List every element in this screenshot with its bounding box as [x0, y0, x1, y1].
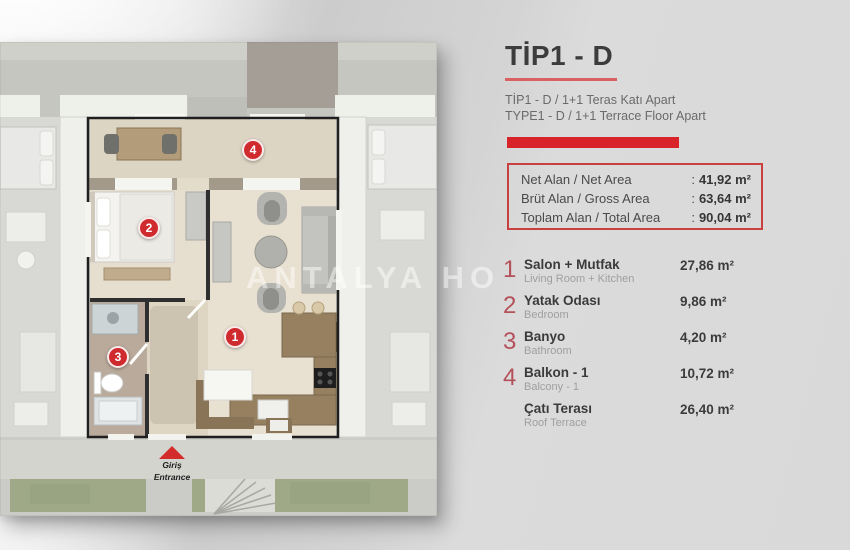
room-row-roof-terrace: Çatı Terası Roof Terrace 26,40 m² — [503, 401, 833, 429]
area-value: 63,64 m² — [699, 191, 751, 206]
room-number: 4 — [503, 366, 524, 393]
neighbor-unit-left — [0, 117, 88, 437]
room-area: 4,20 m² — [680, 330, 833, 357]
room-badge-4: 4 — [242, 139, 264, 161]
room-name-en: Roof Terrace — [524, 417, 680, 429]
room-row-bathroom: 3 Banyo Bathroom 4,20 m² — [503, 329, 833, 357]
street-band — [0, 42, 437, 117]
room-number: 1 — [503, 258, 524, 285]
area-label: Toplam Alan / Total Area — [521, 208, 691, 227]
room-area: 27,86 m² — [680, 258, 833, 285]
sofa — [302, 207, 336, 293]
bed-bench — [104, 268, 170, 280]
area-value: 41,92 m² — [699, 172, 751, 187]
area-summary-box: Net Alan / Net Area :41,92 m² Brüt Alan … — [507, 163, 763, 230]
room-area: 26,40 m² — [680, 402, 833, 429]
area-row-gross: Brüt Alan / Gross Area :63,64 m² — [521, 189, 751, 208]
colon: : — [691, 172, 695, 187]
room-number: 2 — [503, 294, 524, 321]
colon: : — [691, 191, 695, 206]
room-area: 9,86 m² — [680, 294, 833, 321]
entrance-label-tr: Giriş — [142, 461, 202, 471]
entrance-marker: Giriş Entrance — [142, 446, 202, 482]
armchair-bottom — [257, 283, 286, 313]
room-area: 10,72 m² — [680, 366, 833, 393]
red-accent-bar — [507, 137, 679, 148]
area-label: Brüt Alan / Gross Area — [521, 189, 691, 208]
garden — [0, 440, 437, 514]
area-row-total: Toplam Alan / Total Area :90,04 m² — [521, 208, 751, 227]
room-name-tr: Banyo — [524, 329, 680, 344]
room-name-tr: Salon + Mutfak — [524, 257, 680, 272]
console-cabinet — [213, 222, 231, 282]
room-badge-1: 1 — [224, 326, 246, 348]
room-name-en: Living Room + Kitchen — [524, 273, 680, 285]
room-number — [503, 402, 524, 429]
room-name-tr: Çatı Terası — [524, 401, 680, 416]
stove — [314, 368, 336, 388]
room-name-en: Bathroom — [524, 345, 680, 357]
bed — [90, 192, 174, 262]
unit-subtitles: TİP1 - D / 1+1 Teras Katı Apart TYPE1 - … — [505, 92, 706, 124]
armchair-top — [257, 192, 287, 225]
subtitle-english: TYPE1 - D / 1+1 Terrace Floor Apart — [505, 108, 706, 124]
bathtub — [94, 397, 142, 425]
floor-plan-rendering — [0, 42, 437, 516]
entrance-arrow-icon — [159, 446, 185, 459]
neighbor-unit-right — [338, 117, 437, 437]
room-name-tr: Yatak Odası — [524, 293, 680, 308]
subtitle-turkish: TİP1 - D / 1+1 Teras Katı Apart — [505, 92, 706, 108]
entrance-label-en: Entrance — [142, 473, 202, 483]
wardrobe — [186, 192, 206, 240]
room-name-en: Bedroom — [524, 309, 680, 321]
room-row-bedroom: 2 Yatak Odası Bedroom 9,86 m² — [503, 293, 833, 321]
room-number: 3 — [503, 330, 524, 357]
room-row-living: 1 Salon + Mutfak Living Room + Kitchen 2… — [503, 257, 833, 285]
room-name-tr: Balkon - 1 — [524, 365, 680, 380]
floor-plan-photo: 1 2 3 4 Giriş Entrance — [0, 42, 437, 516]
shower — [92, 304, 138, 334]
area-label: Net Alan / Net Area — [521, 170, 691, 189]
title-underline — [505, 78, 617, 81]
coffee-table — [255, 236, 287, 268]
area-value: 90,04 m² — [699, 210, 751, 225]
room-row-balcony: 4 Balkon - 1 Balcony - 1 10,72 m² — [503, 365, 833, 393]
colon: : — [691, 210, 695, 225]
room-badge-3: 3 — [107, 346, 129, 368]
room-badge-2: 2 — [138, 217, 160, 239]
room-list: 1 Salon + Mutfak Living Room + Kitchen 2… — [503, 257, 833, 437]
room-name-en: Balcony - 1 — [524, 381, 680, 393]
info-panel: TİP1 - D TİP1 - D / 1+1 Teras Katı Apart… — [470, 0, 850, 550]
area-row-net: Net Alan / Net Area :41,92 m² — [521, 170, 751, 189]
unit-type-title: TİP1 - D — [505, 40, 613, 72]
toilet — [94, 372, 123, 394]
